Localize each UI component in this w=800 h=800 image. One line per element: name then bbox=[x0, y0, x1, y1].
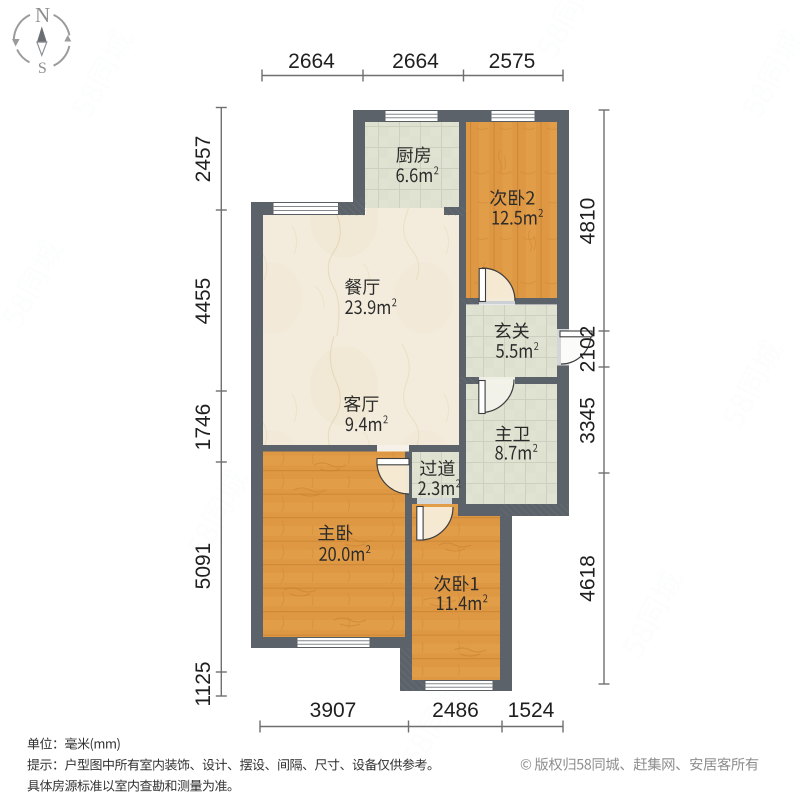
svg-text:4810: 4810 bbox=[577, 198, 600, 245]
svg-text:2575: 2575 bbox=[489, 50, 536, 73]
svg-text:1125: 1125 bbox=[192, 661, 215, 706]
svg-text:N: N bbox=[35, 3, 50, 27]
svg-text:1524: 1524 bbox=[508, 699, 555, 722]
svg-text:1746: 1746 bbox=[192, 404, 215, 451]
svg-text:S: S bbox=[38, 60, 47, 77]
svg-text:4455: 4455 bbox=[192, 278, 215, 325]
svg-text:2664: 2664 bbox=[288, 50, 335, 73]
svg-text:4618: 4618 bbox=[577, 555, 600, 602]
svg-text:5091: 5091 bbox=[192, 543, 215, 590]
svg-text:3907: 3907 bbox=[310, 699, 357, 722]
svg-text:2457: 2457 bbox=[192, 136, 215, 183]
svg-text:2486: 2486 bbox=[432, 699, 479, 722]
svg-text:2664: 2664 bbox=[392, 50, 439, 73]
svg-text:2102: 2102 bbox=[577, 326, 600, 373]
svg-text:3345: 3345 bbox=[577, 397, 600, 444]
